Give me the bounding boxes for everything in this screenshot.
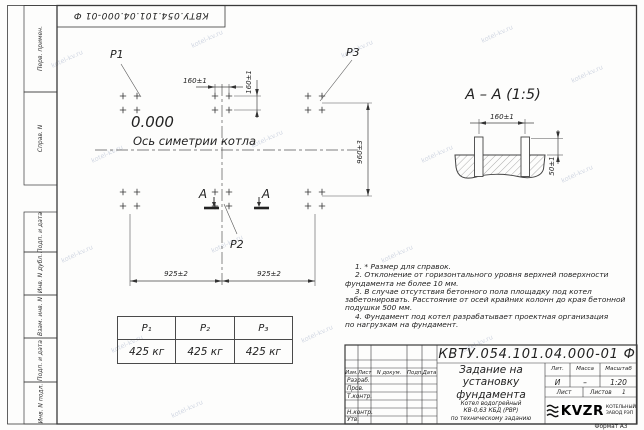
note-4: 4. Фундамент под котел разрабатывает про… xyxy=(345,313,637,330)
company-name: КОТЕЛЬНЫЙ ЗАВОД РЭП xyxy=(606,405,636,416)
load-table-value-p2: 425 кг xyxy=(176,340,234,364)
section-view: А – А (1:5) 160±1 50±1 xyxy=(455,87,563,178)
strip-label-text: Инв. N подл. xyxy=(37,383,44,423)
load-point-p3-label: P3 xyxy=(346,46,360,59)
anchor-bolt-marks xyxy=(120,93,325,209)
header-col-data: Дата xyxy=(422,370,437,376)
load-table-value-p3: 425 кг xyxy=(234,340,292,364)
sheets-label: Листов xyxy=(590,390,612,396)
document-subtitle: Котел водогрейный КВ-0,63 КБД (РВР) по т… xyxy=(437,401,545,423)
anchor-stud-right xyxy=(521,137,530,177)
strip-label-perv-primen: Перв. примен. xyxy=(24,5,57,92)
lit-value: И xyxy=(545,378,570,387)
foundation-block xyxy=(455,155,545,178)
plan-view: P1 P3 P2 0.000 Ось симетрии котла 160±1 … xyxy=(95,46,372,288)
load-point-p2-label: P2 xyxy=(230,238,244,251)
anchor-stud-left xyxy=(475,137,484,177)
header-col-dokum: N докум. xyxy=(371,370,407,376)
kvzr-coil-icon xyxy=(546,404,559,418)
strip-label-sprav-n: Справ. N xyxy=(24,92,57,185)
note-2: 2. Отклонение от горизонтального уровня … xyxy=(345,271,637,288)
strip-label-text: Перв. примен. xyxy=(37,26,44,71)
section-letter-left: А xyxy=(198,187,207,201)
load-table-value-row: 425 кг 425 кг 425 кг xyxy=(118,340,293,364)
header-col-izm: Изм. xyxy=(345,370,358,376)
sheets-value: 1 xyxy=(622,390,626,396)
sign-row-utv: Утв. xyxy=(347,417,359,423)
strip-label-text: Подп. и дата xyxy=(37,212,44,253)
note-3: 3. В случае отсутствия бетонного пола пл… xyxy=(345,288,637,313)
top-stamp-designation: КВТУ.054.101.04.000-01 Ф xyxy=(57,5,225,26)
load-table-header-p2: P₂ xyxy=(176,317,234,340)
section-dim-height: 50±1 xyxy=(548,156,556,175)
strip-label-podp-data-1: Подп. и дата xyxy=(24,212,57,252)
dim-bolt-x: 160±1 xyxy=(183,77,207,85)
sign-row-razrab: Разраб. xyxy=(347,378,370,384)
elevation-label: 0.000 xyxy=(131,113,174,131)
strip-label-text: Инв. N дубл. xyxy=(37,254,44,293)
dim-span-left: 925±2 xyxy=(164,270,188,278)
masshtab-value: 1:20 xyxy=(600,378,637,387)
strip-label-text: Справ. N xyxy=(37,125,44,152)
section-cut-marks xyxy=(204,197,269,208)
company-logo-text: KVZR xyxy=(561,403,604,419)
strip-label-podp-data-2: Подп. и дата xyxy=(24,338,57,382)
load-point-p1-label: P1 xyxy=(110,48,124,61)
load-table-header-p3: P₃ xyxy=(234,317,292,340)
dim-rows: 960±3 xyxy=(356,140,364,164)
strip-label-vzam-inv: Взам. инв. N xyxy=(24,295,57,338)
sign-row-prov: Пров. xyxy=(347,386,364,392)
symmetry-axis-label: Ось симетрии котла xyxy=(133,134,256,148)
load-table-header-row: P₁ P₂ P₃ xyxy=(118,317,293,340)
load-table-value-p1: 425 кг xyxy=(118,340,176,364)
header-col-list: Лист xyxy=(358,370,371,376)
massa-header: Масса xyxy=(570,366,600,372)
strip-label-inv-podl: Инв. N подл. xyxy=(24,382,57,424)
drawing-sheet: { "watermark": "kotel-kv.ru", "frame": {… xyxy=(0,0,644,430)
strip-label-text: Подп. и дата xyxy=(37,340,44,381)
section-letter-right: А xyxy=(261,187,270,201)
strip-label-inv-dubl: Инв. N дубл. xyxy=(24,252,57,295)
dim-span-right: 925±2 xyxy=(257,270,281,278)
company-logo-block: KVZR КОТЕЛЬНЫЙ ЗАВОД РЭП xyxy=(546,398,636,423)
dim-bolt-y: 160±1 xyxy=(245,70,253,94)
load-table-header-p1: P₁ xyxy=(118,317,176,340)
massa-value: – xyxy=(570,378,600,387)
lit-header: Лит. xyxy=(545,366,570,372)
format-label: Формат А3 xyxy=(585,424,637,430)
document-designation: КВТУ.054.101.04.000-01 Ф xyxy=(437,347,637,362)
section-dim-width: 160±1 xyxy=(490,113,514,121)
sign-row-tkontr: Т.контр. xyxy=(347,394,372,400)
document-title: Задание на установку фундамента xyxy=(437,364,545,401)
section-title: А – А (1:5) xyxy=(464,87,541,103)
load-table: P₁ P₂ P₃ 425 кг 425 кг 425 кг xyxy=(117,316,293,364)
masshtab-header: Масштаб xyxy=(600,366,637,372)
sheet-label: Лист xyxy=(545,390,583,396)
strip-label-text: Взам. инв. N xyxy=(37,297,44,336)
notes: 1. * Размер для справок. 2. Отклонение о… xyxy=(345,263,637,329)
sign-row-nkontr: Н.контр. xyxy=(347,410,373,416)
header-col-podp: Подп. xyxy=(407,370,422,376)
